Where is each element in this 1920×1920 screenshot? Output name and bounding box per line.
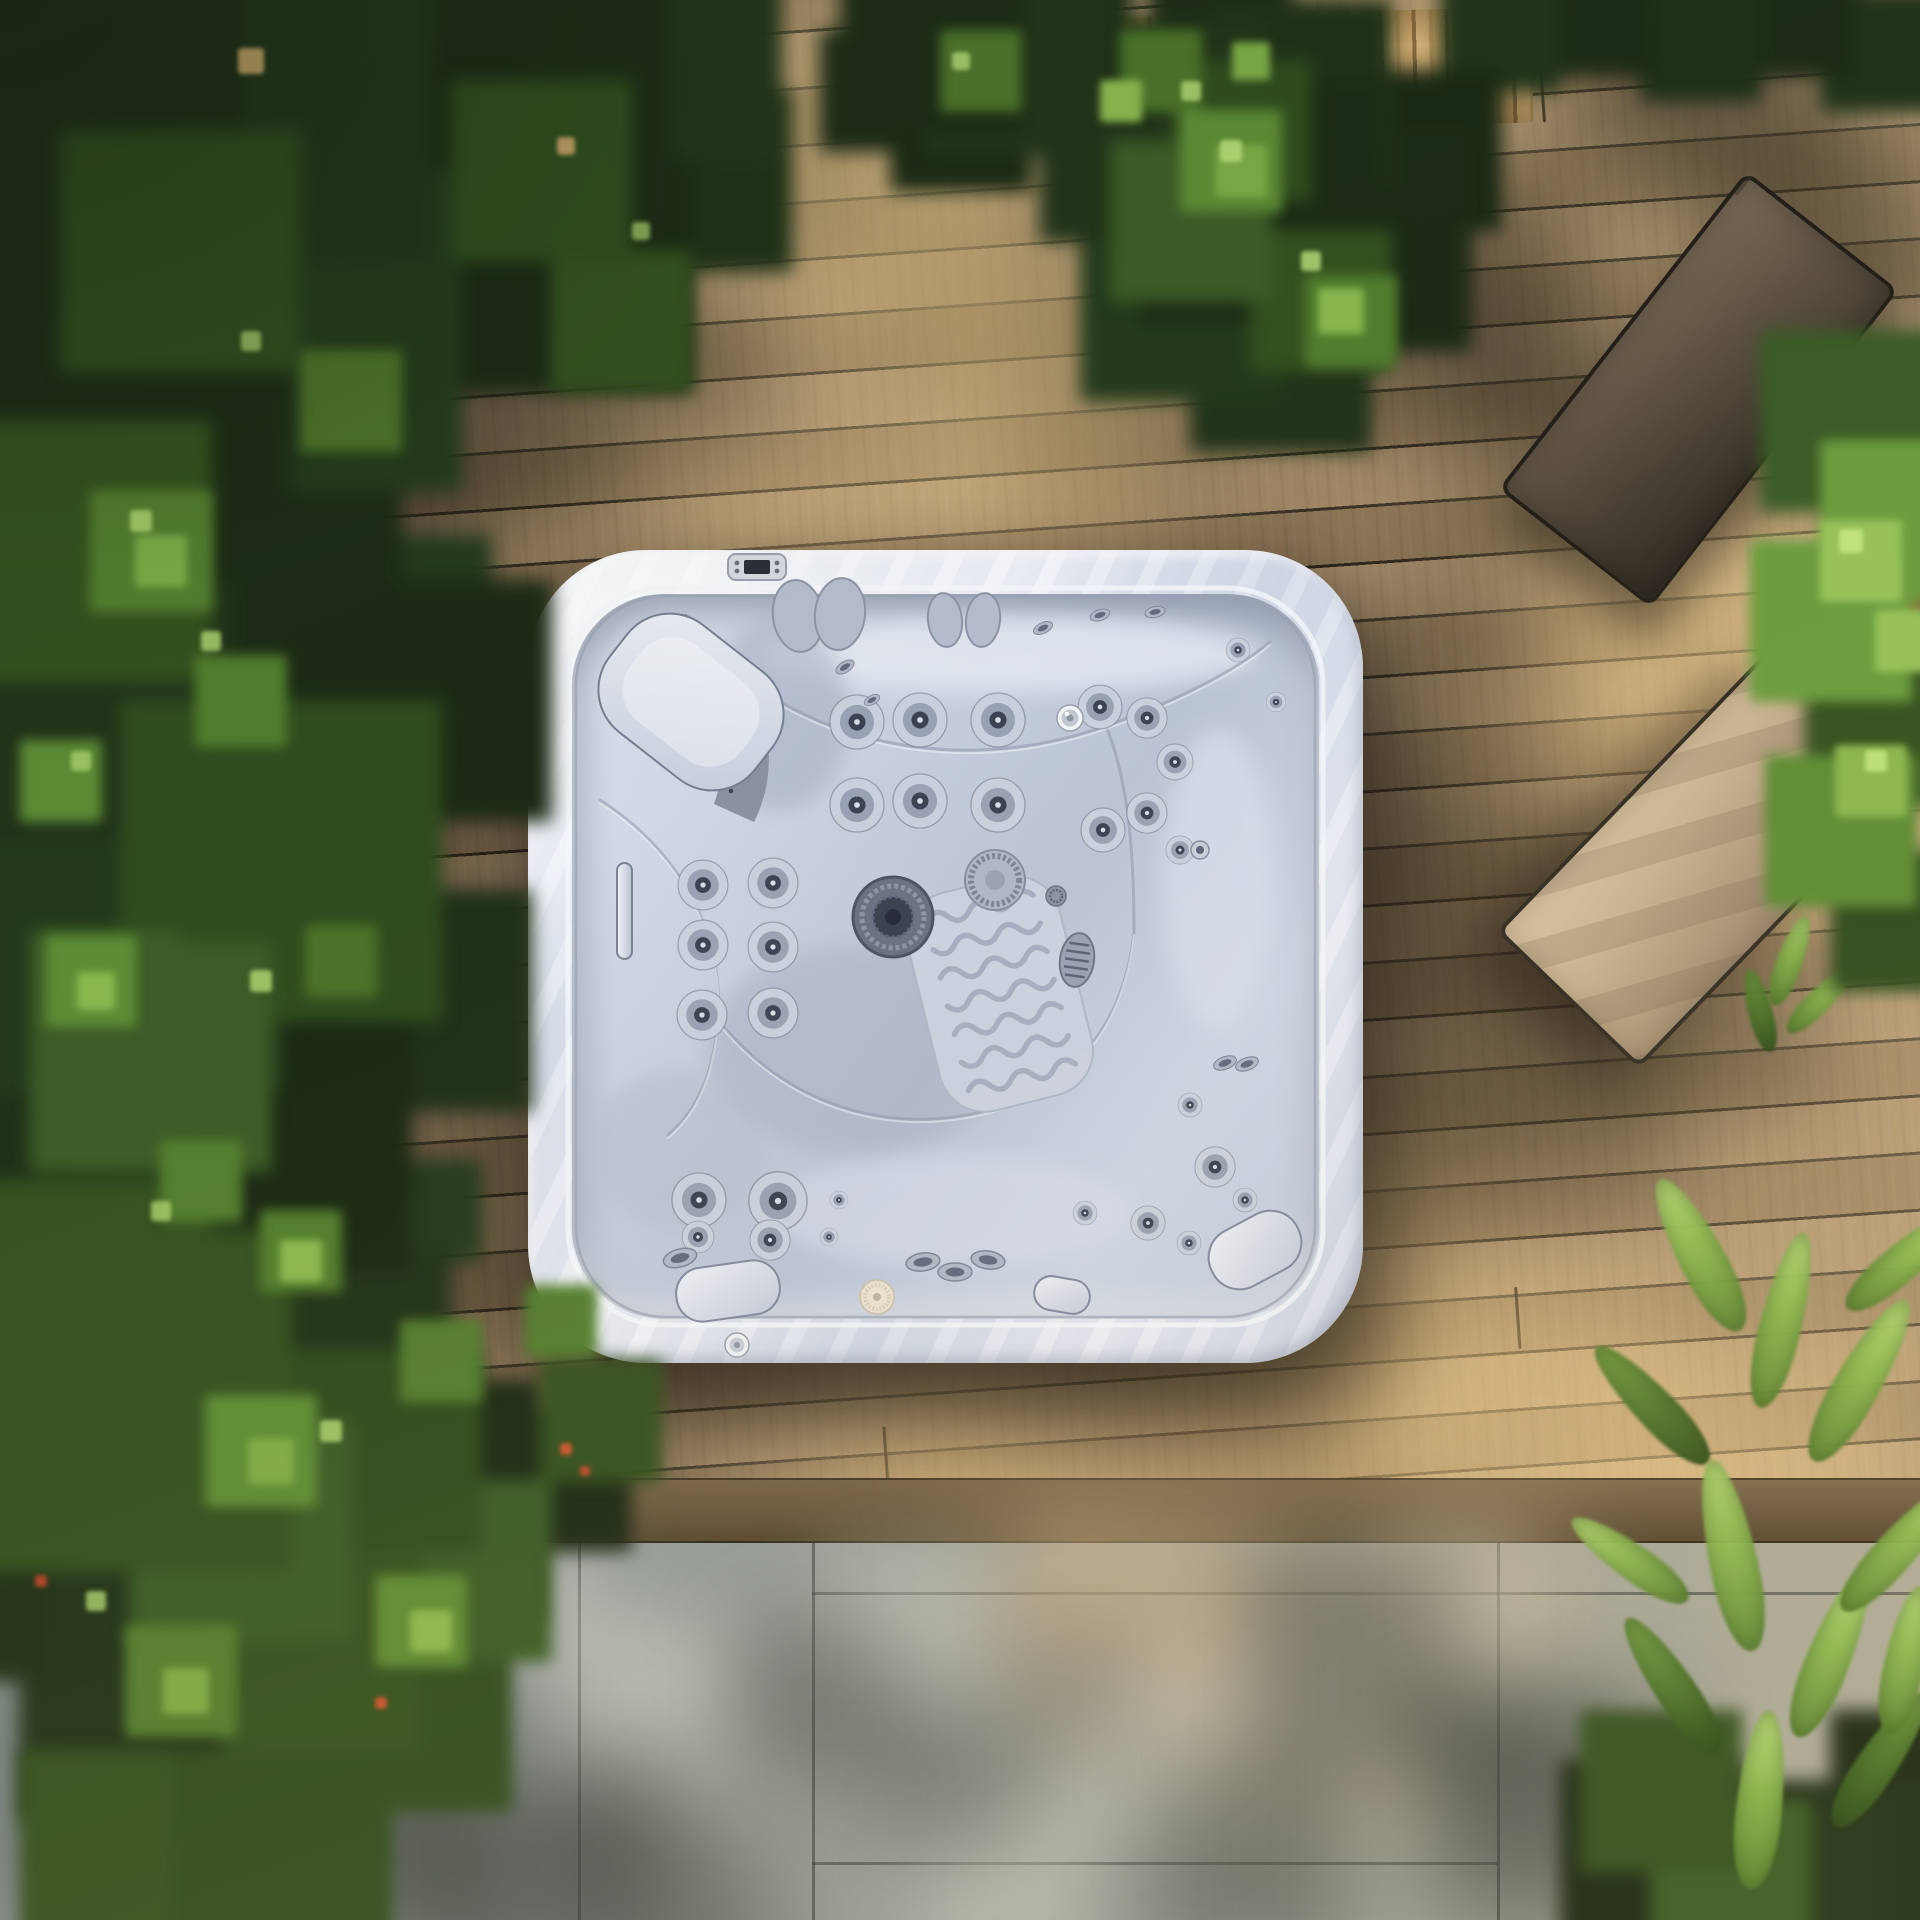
hot-tub-details bbox=[528, 550, 1363, 1363]
air-control-knob bbox=[1057, 705, 1083, 731]
plank-seam bbox=[1539, 67, 1546, 122]
plank-seam bbox=[882, 1426, 889, 1484]
slab-seam bbox=[578, 1543, 581, 1920]
backyard-scene bbox=[0, 0, 1920, 1920]
plank-seam bbox=[644, 310, 651, 365]
deck-edge-board bbox=[0, 1478, 1920, 1544]
bamboo-fence bbox=[1119, 7, 1534, 134]
filter-cap bbox=[965, 850, 1025, 910]
plank-seam bbox=[1185, 303, 1192, 358]
wall-jet bbox=[1191, 841, 1209, 859]
side-table bbox=[1816, 538, 1920, 648]
seat-pillow bbox=[673, 1257, 784, 1325]
led-port bbox=[860, 1280, 894, 1314]
mesh-cap bbox=[1046, 886, 1066, 906]
rotary-massage-jet bbox=[853, 877, 933, 957]
grab-bar bbox=[617, 863, 632, 959]
slab-seam bbox=[812, 1862, 1497, 1865]
air-control-knob bbox=[725, 1333, 749, 1357]
seat-pillow bbox=[1031, 1273, 1092, 1316]
control-panel bbox=[728, 554, 786, 580]
concrete-patio bbox=[0, 1543, 1920, 1920]
hot-tub bbox=[528, 550, 1363, 1363]
slab-seam bbox=[1497, 1543, 1500, 1920]
plank-seam bbox=[1514, 1287, 1521, 1349]
